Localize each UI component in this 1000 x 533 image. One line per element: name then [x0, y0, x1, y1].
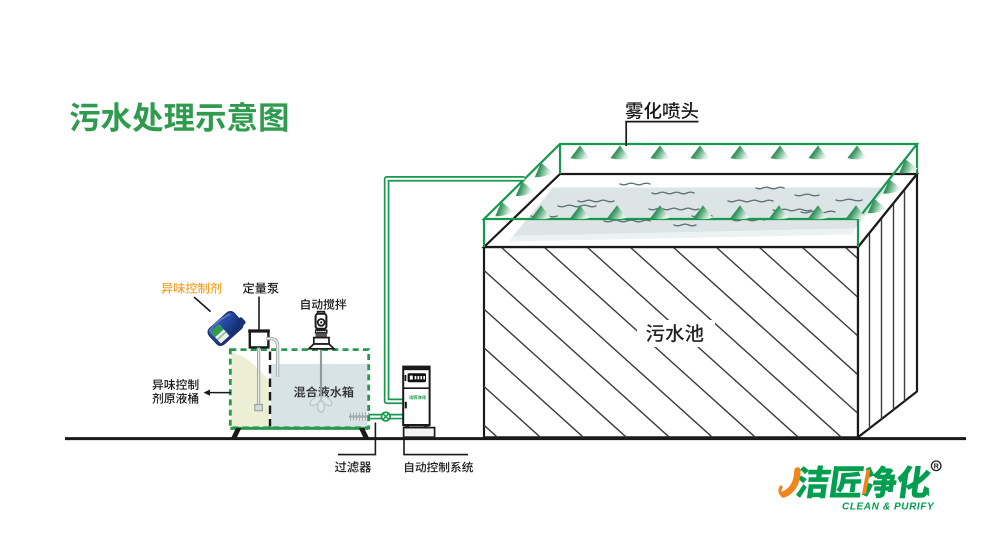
svg-text:R: R [934, 462, 940, 471]
svg-text:CLEAN & PURIFY: CLEAN & PURIFY [842, 502, 935, 513]
